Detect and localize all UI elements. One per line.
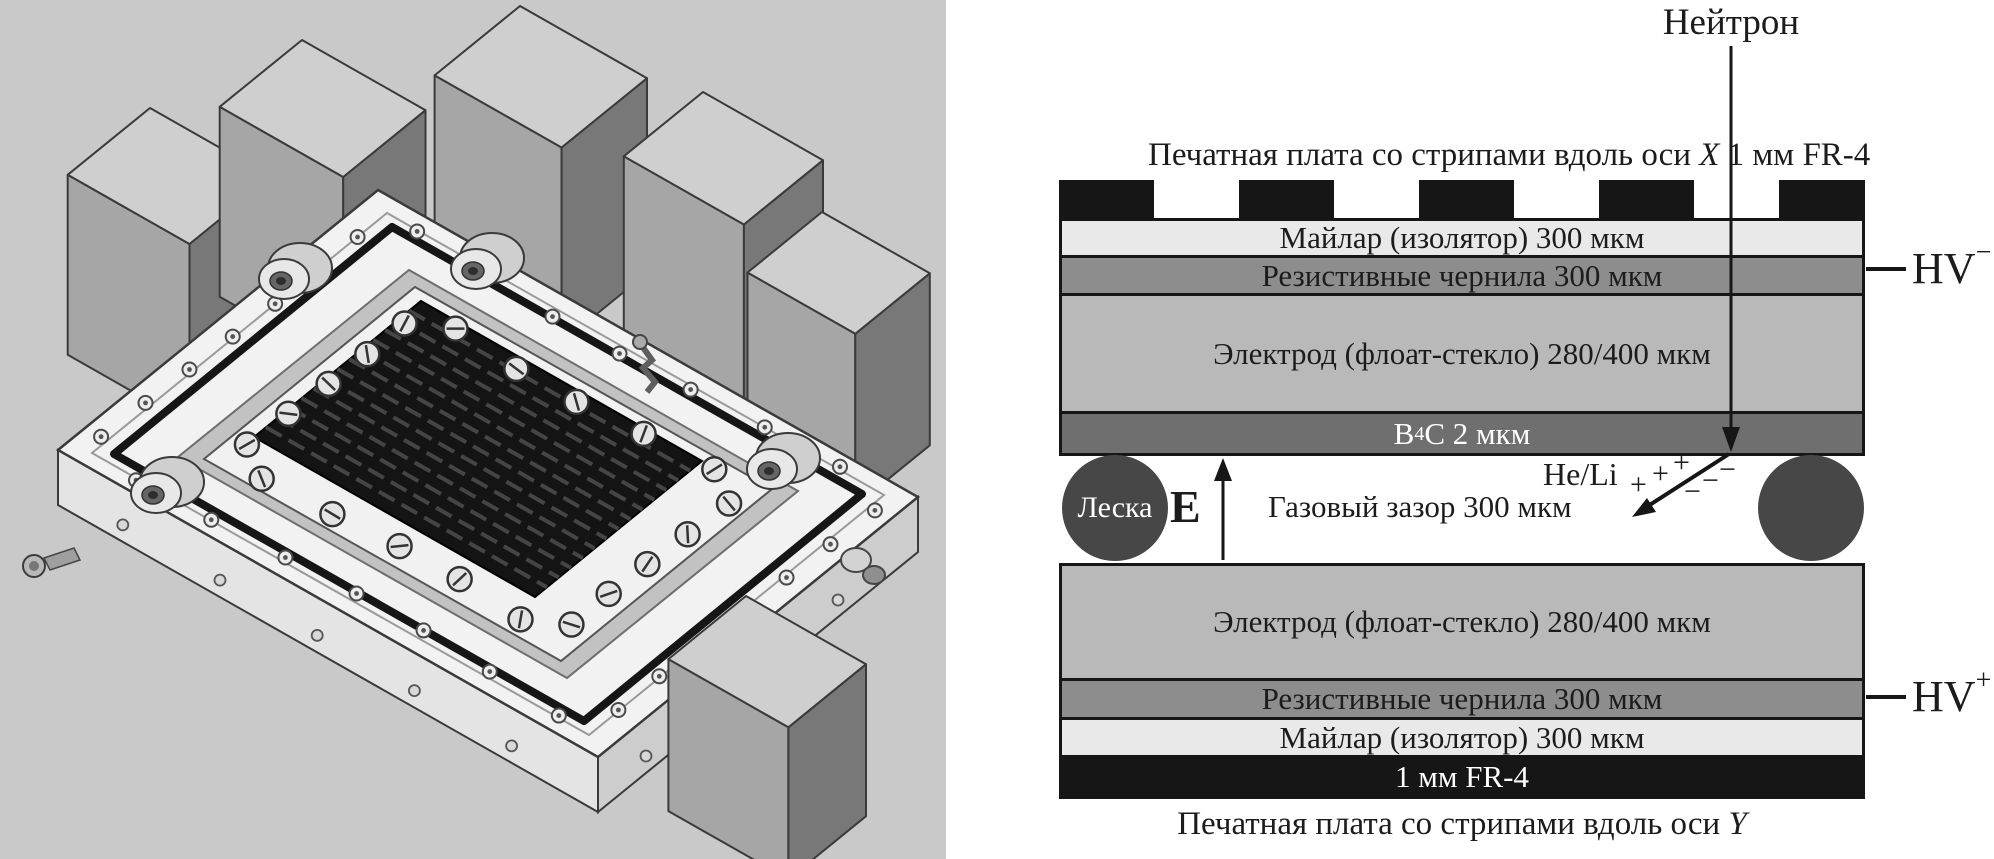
minus-charge: − [1684, 475, 1701, 509]
neutron-label: Нейтрон [1633, 1, 1829, 44]
layer-electrode-bottom: Электрод (флоат-стекло) 280/400 мкм [1059, 563, 1865, 681]
ion-label: He/Li [1543, 456, 1618, 493]
e-field-label: E [1170, 480, 1201, 533]
minus-charge: − [1702, 464, 1719, 498]
strip-layer-x [1059, 180, 1865, 218]
gas-gap-label: Газовый зазор 300 мкм [1268, 489, 1572, 525]
axis-x-label: X [1699, 137, 1719, 173]
hv-minus-label: HV− [1912, 243, 1991, 294]
plus-charge: + [1630, 468, 1647, 502]
layer-mylar-top: Майлар (изолятор) 300 мкм [1059, 218, 1865, 258]
axis-y-label: Y [1728, 806, 1746, 842]
layer-fr4-bottom: 1 мм FR-4 [1059, 755, 1865, 799]
layer-resistive-ink-top: Резистивные чернила 300 мкм [1059, 255, 1865, 296]
pcb-y-caption: Печатная плата со стрипами вдоль оси Y [1059, 806, 1865, 843]
minus-charge: − [1719, 453, 1736, 487]
spacer-left: Леска [1062, 455, 1168, 561]
layer-b4c: B4C 2 мкм [1059, 411, 1865, 456]
plus-charge: + [1652, 457, 1669, 491]
layer-mylar-bottom: Майлар (изолятор) 300 мкм [1059, 717, 1865, 758]
layer-electrode-top: Электрод (флоат-стекло) 280/400 мкм [1059, 293, 1865, 414]
hv-plus-label: HV+ [1912, 671, 1991, 722]
spacer-right [1758, 455, 1864, 561]
layer-resistive-ink-bottom: Резистивные чернила 300 мкм [1059, 678, 1865, 720]
detector-3d-render [0, 0, 946, 859]
pcb-x-caption: Печатная плата со стрипами вдоль оси X 1… [1148, 137, 1870, 174]
figure: Нейтрон Печатная плата со стрипами вдоль… [0, 0, 1994, 859]
